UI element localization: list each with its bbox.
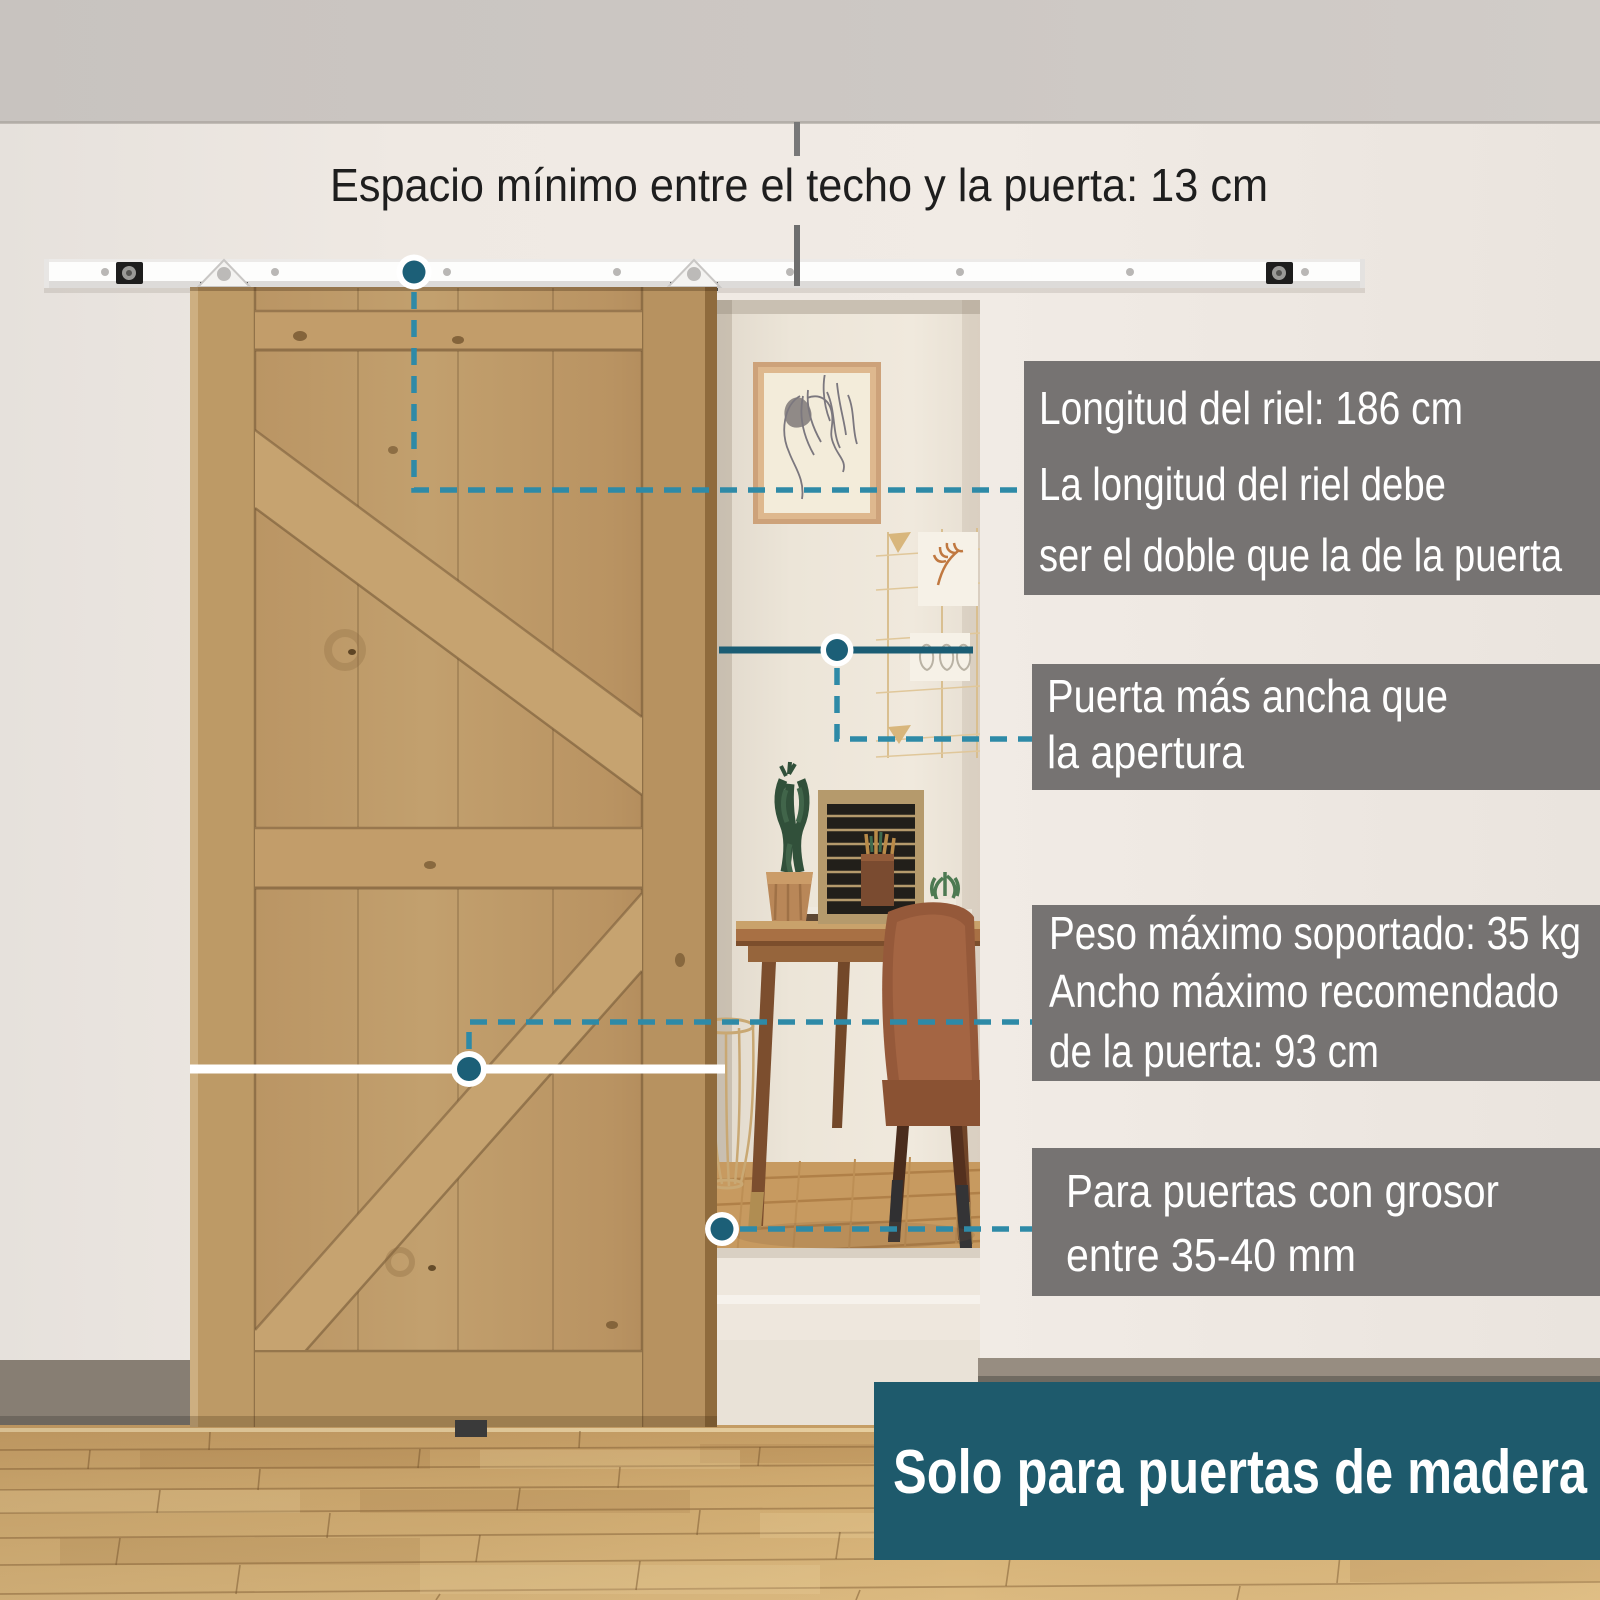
svg-text:la apertura: la apertura: [1047, 726, 1244, 778]
svg-text:Peso máximo soportado: 35 kg: Peso máximo soportado: 35 kg: [1049, 907, 1581, 959]
svg-text:Longitud del riel: 186 cm: Longitud del riel: 186 cm: [1039, 382, 1463, 434]
svg-text:Espacio mínimo entre el techo: Espacio mínimo entre el techo y la puert…: [330, 159, 1268, 211]
svg-text:Puerta más ancha que: Puerta más ancha que: [1047, 670, 1448, 722]
svg-text:entre 35-40 mm: entre 35-40 mm: [1066, 1229, 1356, 1281]
svg-text:Ancho máximo recomendado: Ancho máximo recomendado: [1049, 965, 1559, 1017]
svg-text:de la puerta: 93 cm: de la puerta: 93 cm: [1049, 1025, 1379, 1077]
svg-text:La longitud del riel debe: La longitud del riel debe: [1039, 458, 1446, 510]
svg-text:ser el doble que la de la puer: ser el doble que la de la puerta: [1039, 529, 1562, 581]
svg-text:Solo para puertas de madera: Solo para puertas de madera: [893, 1438, 1587, 1507]
svg-text:Para puertas con grosor: Para puertas con grosor: [1066, 1165, 1499, 1217]
